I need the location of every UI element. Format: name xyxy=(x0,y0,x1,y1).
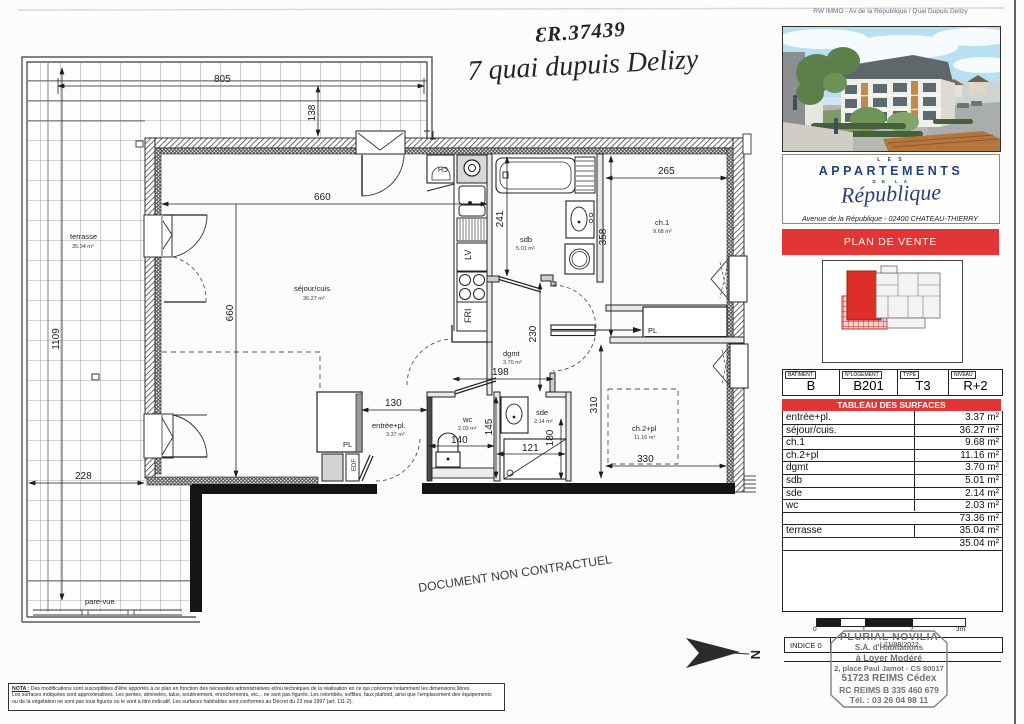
svg-text:138: 138 xyxy=(307,104,318,121)
svg-text:230: 230 xyxy=(528,325,539,342)
svg-text:PL: PL xyxy=(648,326,657,335)
svg-text:121: 121 xyxy=(522,443,539,454)
svg-text:1109: 1109 xyxy=(51,328,62,350)
svg-text:sde: sde xyxy=(536,408,548,417)
svg-text:entrée+pl.: entrée+pl. xyxy=(372,421,406,430)
svg-text:wc: wc xyxy=(462,415,472,424)
svg-text:9.68 m²: 9.68 m² xyxy=(653,229,672,235)
svg-text:130: 130 xyxy=(385,398,402,409)
svg-text:7 quai dupuis Delizy: 7 quai dupuis Delizy xyxy=(467,44,700,87)
svg-text:N: N xyxy=(748,650,763,659)
svg-text:ch.1: ch.1 xyxy=(655,218,669,227)
svg-text:dgmt: dgmt xyxy=(503,349,521,358)
svg-text:ch.2+pl: ch.2+pl xyxy=(632,424,657,433)
svg-text:séjour/cuis.: séjour/cuis. xyxy=(294,284,332,293)
svg-text:660: 660 xyxy=(314,192,331,203)
svg-text:228: 228 xyxy=(75,471,92,482)
svg-text:terrasse: terrasse xyxy=(70,232,97,241)
svg-text:241: 241 xyxy=(495,210,506,227)
svg-text:ƐR.37439: ƐR.37439 xyxy=(535,17,627,47)
svg-text:36.27 m²: 36.27 m² xyxy=(303,296,325,302)
svg-text:pare-vue: pare-vue xyxy=(85,597,115,606)
svg-text:330: 330 xyxy=(637,454,654,465)
svg-text:180: 180 xyxy=(545,429,556,446)
svg-text:EDF: EDF xyxy=(352,459,358,471)
svg-text:358: 358 xyxy=(598,228,609,245)
svg-text:140: 140 xyxy=(451,435,468,446)
svg-text:5.01 m²: 5.01 m² xyxy=(516,246,535,252)
svg-text:FRI: FRI xyxy=(463,309,473,324)
svg-text:35.04 m²: 35.04 m² xyxy=(72,244,94,250)
svg-text:CH: CH xyxy=(438,165,448,172)
svg-text:PL: PL xyxy=(343,440,352,449)
svg-text:310: 310 xyxy=(589,396,600,413)
svg-text:145: 145 xyxy=(484,418,495,435)
svg-text:11.16 m²: 11.16 m² xyxy=(634,435,655,441)
svg-text:3.37 m²: 3.37 m² xyxy=(386,432,405,438)
svg-text:sdb: sdb xyxy=(520,235,532,244)
svg-text:660: 660 xyxy=(225,304,236,321)
svg-text:265: 265 xyxy=(658,166,675,177)
svg-text:DOCUMENT NON CONTRACTUEL: DOCUMENT NON CONTRACTUEL xyxy=(417,552,613,595)
svg-text:2.14 m²: 2.14 m² xyxy=(534,419,553,425)
svg-text:3.70 m²: 3.70 m² xyxy=(503,360,522,366)
svg-text:LV: LV xyxy=(463,250,473,260)
svg-text:2.03 m²: 2.03 m² xyxy=(458,426,477,432)
svg-text:805: 805 xyxy=(214,74,231,85)
svg-text:198: 198 xyxy=(492,367,509,378)
